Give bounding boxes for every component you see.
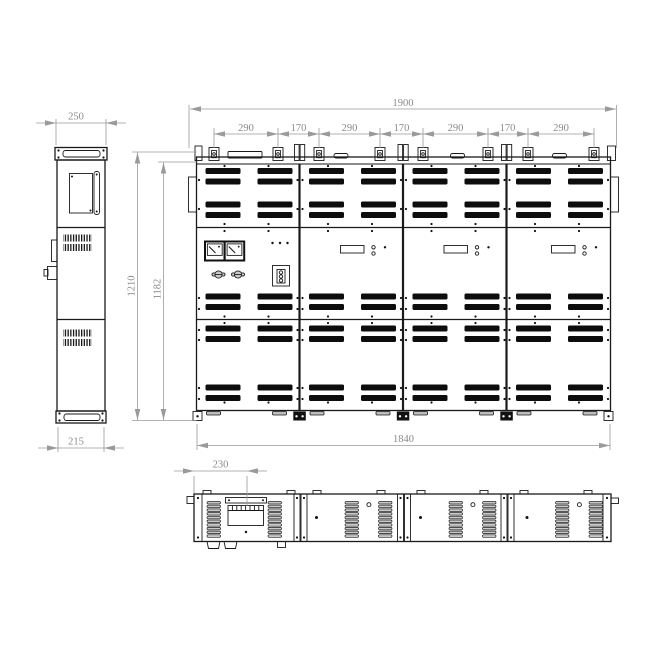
section-divider [505, 164, 507, 411]
side-view [44, 148, 107, 424]
dim-segment-label: 290 [448, 123, 464, 134]
side-vent-lower [63, 330, 92, 347]
dim-segment-label: 170 [500, 123, 516, 134]
dim-segment-label: 290 [553, 123, 569, 134]
dim-side-top-width-label: 250 [68, 112, 84, 123]
button-station [273, 266, 290, 287]
side-door [70, 172, 100, 215]
side-vent-upper [63, 235, 92, 252]
control-panel [205, 242, 290, 287]
section-divider [402, 164, 404, 411]
dim-segment-label: 290 [342, 123, 358, 134]
dimensions: 1900 290 170 290 170 290 170 290 1210 11… [36, 98, 617, 506]
dim-overall-width-label: 1900 [393, 98, 414, 109]
dim-segment-label: 170 [291, 123, 307, 134]
door-handle [94, 172, 100, 215]
right-handle [611, 177, 619, 212]
cabinet-drawing: 1900 290 170 290 170 290 170 290 1210 11… [0, 0, 650, 650]
left-handle [189, 177, 197, 212]
dim-entry-offset-label: 230 [213, 460, 229, 471]
front-view [189, 145, 619, 421]
dim-height-body-label: 1182 [153, 279, 164, 300]
base-rail [193, 412, 613, 421]
dim-segment-label: 290 [238, 123, 254, 134]
section-divider [298, 164, 300, 411]
technical-drawing-canvas: 1900 290 170 290 170 290 170 290 1210 11… [0, 0, 650, 650]
side-hinge [44, 240, 57, 280]
dim-base-width-label: 1840 [393, 434, 414, 445]
dim-segment-label: 170 [394, 123, 410, 134]
terminal-box [228, 506, 264, 526]
plan-view [187, 491, 619, 549]
front-louvers [206, 168, 604, 401]
cable-entry-section [207, 498, 286, 549]
dim-height-total-label: 1210 [127, 276, 138, 297]
dim-side-bottom-width-label: 215 [68, 437, 84, 448]
